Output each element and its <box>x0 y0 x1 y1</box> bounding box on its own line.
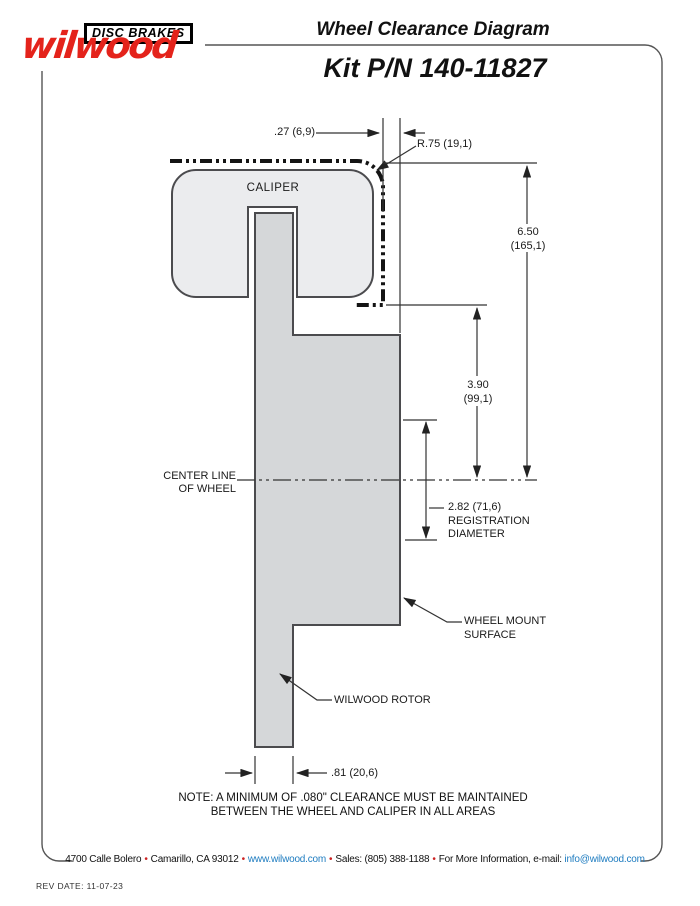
dim-registration-word1: REGISTRATION <box>448 515 530 527</box>
wilwood-rotor-label: WILWOOD ROTOR <box>334 694 431 708</box>
clearance-note-line1: NOTE: A MINIMUM OF .080" CLEARANCE MUST … <box>178 792 527 804</box>
footer-city: Camarillo, CA 93012 <box>151 854 239 865</box>
dim-caliper-clearance: .27 (6,9) <box>240 126 315 140</box>
caliper-label: CALIPER <box>222 182 324 196</box>
footer-website-link[interactable]: www.wilwood.com <box>248 854 326 865</box>
footer-sales: Sales: (805) 388-1188 <box>335 854 429 865</box>
dim-registration-diameter: 2.82 (71,6) REGISTRATION DIAMETER <box>448 501 530 542</box>
wilwood-logo: wilwood <box>20 24 178 67</box>
footer-email-link[interactable]: info@wilwood.com <box>564 854 644 865</box>
footer-info-prefix: For More Information, e-mail: <box>439 854 562 865</box>
wheel-mount-surface-label: WHEEL MOUNT SURFACE <box>464 615 546 642</box>
dim-wheel-radius-mm: (165,1) <box>511 240 546 252</box>
footer-bullet: • <box>326 854 335 865</box>
dim-rotor-width: .81 (20,6) <box>331 767 378 781</box>
footer-bullet: • <box>141 854 150 865</box>
wheel-mount-line2: SURFACE <box>464 629 516 641</box>
dim-caliper-to-centerline-in: 3.90 <box>467 379 488 391</box>
footer-address: 4700 Calle Bolero <box>65 854 141 865</box>
footer-bullet: • <box>239 854 248 865</box>
dim-wheel-radius: 6.50 (165,1) <box>492 226 564 253</box>
rev-date: REV DATE: 11-07-23 <box>36 881 123 891</box>
centerline-label-line2: OF WHEEL <box>179 483 236 495</box>
dim-corner-radius: R.75 (19,1) <box>417 138 472 152</box>
clearance-note: NOTE: A MINIMUM OF .080" CLEARANCE MUST … <box>98 792 608 819</box>
wheel-mount-line1: WHEEL MOUNT <box>464 615 546 627</box>
kit-part-number: Kit P/N 140-11827 <box>250 53 620 84</box>
centerline-label-line1: CENTER LINE <box>163 470 236 482</box>
page-title: Wheel Clearance Diagram <box>260 19 606 41</box>
dim-registration-word2: DIAMETER <box>448 528 505 540</box>
footer-bullet: • <box>429 854 438 865</box>
clearance-note-line2: BETWEEN THE WHEEL AND CALIPER IN ALL ARE… <box>211 806 496 818</box>
centerline-label: CENTER LINE OF WHEEL <box>130 470 236 496</box>
footer-contact-line: 4700 Calle Bolero•Camarillo, CA 93012•ww… <box>55 854 655 865</box>
wheel-clearance-diagram-page: DISC BRAKES wilwood Wheel Clearance Diag… <box>0 0 700 906</box>
dim-caliper-to-centerline: 3.90 (99,1) <box>442 379 514 406</box>
dim-caliper-to-centerline-mm: (99,1) <box>464 393 493 405</box>
dim-wheel-radius-in: 6.50 <box>517 226 538 238</box>
dim-registration-value: 2.82 (71,6) <box>448 501 501 513</box>
